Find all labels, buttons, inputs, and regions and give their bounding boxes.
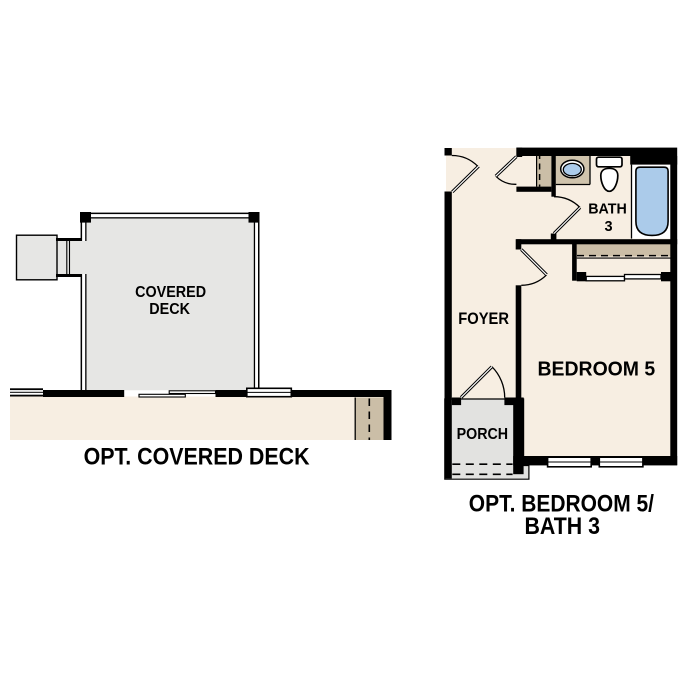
- svg-text:BEDROOM 5: BEDROOM 5: [538, 358, 656, 381]
- svg-text:DECK: DECK: [149, 301, 190, 318]
- svg-text:FOYER: FOYER: [458, 309, 509, 328]
- svg-text:BATH: BATH: [588, 201, 627, 217]
- svg-text:COVERED: COVERED: [135, 284, 206, 301]
- svg-text:OPT. COVERED DECK: OPT. COVERED DECK: [84, 443, 311, 470]
- svg-text:BATH 3: BATH 3: [525, 513, 601, 540]
- svg-text:3: 3: [604, 219, 612, 235]
- svg-text:PORCH: PORCH: [457, 426, 509, 443]
